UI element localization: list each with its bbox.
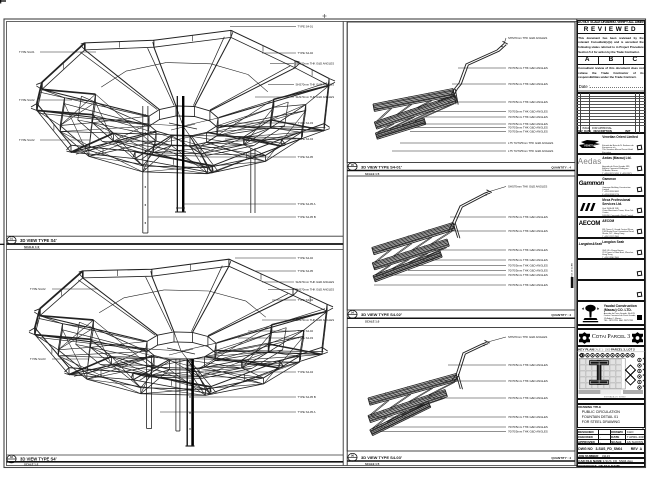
svg-text:TYPE S4-02: TYPE S4-02 xyxy=(30,287,46,291)
svg-text:TYPE S4-03: TYPE S4-03 xyxy=(30,357,46,361)
svg-text:TYPE S4-02: TYPE S4-02 xyxy=(298,298,314,302)
svg-text:SCALE 1:5: SCALE 1:5 xyxy=(365,172,380,176)
svg-text:SHS70mm THK G&D ANGLES: SHS70mm THK G&D ANGLES xyxy=(508,185,547,189)
svg-text:SCALE 1:5: SCALE 1:5 xyxy=(365,462,380,466)
svg-text:70/70/5mm THK G&D ANGLES: 70/70/5mm THK G&D ANGLES xyxy=(508,115,548,119)
svg-text:SHS70mm THK G&D ANGLES: SHS70mm THK G&D ANGLES xyxy=(508,36,547,40)
svg-text:TYPE S4-02: TYPE S4-02 xyxy=(19,98,35,102)
svg-text:01: 01 xyxy=(10,237,13,241)
svg-text:SHS70mm THK G&D ANGLES: SHS70mm THK G&D ANGLES xyxy=(296,318,335,322)
svg-text:70/70/5mm THK G&D ANGLES: 70/70/5mm THK G&D ANGLES xyxy=(508,283,548,287)
svg-text:SHS70mm THK G&D ANGLES: SHS70mm THK G&D ANGLES xyxy=(296,280,335,284)
svg-text:70/70/5mm THK G&D ANGLES: 70/70/5mm THK G&D ANGLES xyxy=(508,248,548,252)
svg-text:SHS70mm THK G&D ANGLES: SHS70mm THK G&D ANGLES xyxy=(296,83,335,87)
svg-text:L75 70/70/5mm THK G&D ANGLES: L75 70/70/5mm THK G&D ANGLES xyxy=(508,141,553,145)
svg-text:70/70/5mm THK G&D ANGLES: 70/70/5mm THK G&D ANGLES xyxy=(508,110,548,114)
svg-text:70/70/5mm THK G&D ANGLES: 70/70/5mm THK G&D ANGLES xyxy=(508,273,548,277)
svg-text:04: 04 xyxy=(351,311,354,315)
svg-text:02: 02 xyxy=(10,455,13,459)
svg-text:TYPE S4-03: TYPE S4-03 xyxy=(298,336,314,340)
svg-text:TYPE S4-05: TYPE S4-05 xyxy=(298,155,314,159)
svg-text:SCALE 1 : 1000: SCALE 1 : 1000 xyxy=(592,348,610,351)
svg-text:TYPE S4-04: TYPE S4-04 xyxy=(298,370,314,374)
svg-text:3D VIEW TYPE S4′: 3D VIEW TYPE S4′ xyxy=(20,238,57,243)
svg-text:70/70/5mm THK G&D ANGLES: 70/70/5mm THK G&D ANGLES xyxy=(508,269,548,273)
svg-text:70/70/5mm THK G&D ANGLES: 70/70/5mm THK G&D ANGLES xyxy=(508,229,548,233)
svg-text:TYPE S4-02: TYPE S4-02 xyxy=(298,51,314,55)
svg-text:70/70/5mm THK G&D ANGLES: 70/70/5mm THK G&D ANGLES xyxy=(508,430,548,434)
svg-text:SHS70mm THK G&D ANGLES: SHS70mm THK G&D ANGLES xyxy=(508,335,547,339)
svg-text:SCALE 1:5: SCALE 1:5 xyxy=(365,320,380,324)
svg-text:VENETIAN: VENETIAN xyxy=(584,144,597,148)
svg-text:3D VIEW TYPE S4-02′: 3D VIEW TYPE S4-02′ xyxy=(361,312,402,317)
svg-text:QUANTITY : 4: QUANTITY : 4 xyxy=(551,313,571,317)
svg-text:TYPE S4-01: TYPE S4-01 xyxy=(298,25,314,29)
svg-text:70/70/5mm THK G&D ANGLES: 70/70/5mm THK G&D ANGLES xyxy=(508,379,548,383)
svg-text:TYPE S4-02: TYPE S4-02 xyxy=(298,256,314,260)
svg-text:SHS70mm THK G&D ANGLES: SHS70mm THK G&D ANGLES xyxy=(296,95,335,99)
svg-text:TYPE S4-05 A: TYPE S4-05 A xyxy=(298,410,316,414)
svg-text:70/70/5mm THK G&D ANGLES: 70/70/5mm THK G&D ANGLES xyxy=(508,130,548,134)
svg-text:SHS70mm THK G&D ANGLES: SHS70mm THK G&D ANGLES xyxy=(296,288,335,292)
svg-text:70/70/5mm THK G&D ANGLES: 70/70/5mm THK G&D ANGLES xyxy=(508,66,548,70)
svg-text:L75 70/70/5mm THK G&D ANGLES: L75 70/70/5mm THK G&D ANGLES xyxy=(508,149,553,153)
svg-text:70/70/5mm THK G&D ANGLES: 70/70/5mm THK G&D ANGLES xyxy=(508,215,548,219)
svg-text:TYPE S4-04: TYPE S4-04 xyxy=(298,137,314,141)
svg-text:3D VIEW TYPE S4-03′: 3D VIEW TYPE S4-03′ xyxy=(361,455,402,460)
svg-text:70/70/5mm THK G&D ANGLES: 70/70/5mm THK G&D ANGLES xyxy=(508,363,548,367)
svg-text:PARCEL 3, LOT 2: PARCEL 3, LOT 2 xyxy=(611,347,635,351)
svg-text:TYPE S4-02: TYPE S4-02 xyxy=(298,329,314,333)
svg-text:70/70/5mm THK G&D ANGLES: 70/70/5mm THK G&D ANGLES xyxy=(508,396,548,400)
svg-text:70/70/5mm THK G&D ANGLES: 70/70/5mm THK G&D ANGLES xyxy=(508,100,548,104)
svg-text:QUANTITY : 4: QUANTITY : 4 xyxy=(551,456,571,460)
svg-text:05: 05 xyxy=(351,163,354,167)
svg-text:TYPE S4-05 B: TYPE S4-05 B xyxy=(298,215,316,219)
svg-text:3D VIEW TYPE S4′: 3D VIEW TYPE S4′ xyxy=(20,457,57,462)
svg-text:QUANTITY : 4: QUANTITY : 4 xyxy=(551,165,571,169)
svg-text:70/70/5mm THK G&D ANGLES: 70/70/5mm THK G&D ANGLES xyxy=(508,258,548,262)
svg-text:70/70/5mm THK G&D ANGLES: 70/70/5mm THK G&D ANGLES xyxy=(508,82,548,86)
svg-text:70/70/5mm THK G&D ANGLES: 70/70/5mm THK G&D ANGLES xyxy=(508,264,548,268)
svg-text:TYPE S4-05: TYPE S4-05 xyxy=(298,269,314,273)
svg-text:06: 06 xyxy=(351,454,354,458)
svg-text:70/70/5mm THK G&D ANGLES: 70/70/5mm THK G&D ANGLES xyxy=(508,425,548,429)
svg-text:TYPE S4-05 B: TYPE S4-05 B xyxy=(298,395,316,399)
svg-text:SCALE 1:2: SCALE 1:2 xyxy=(24,462,39,466)
svg-text:70/70/5mm THK G&D ANGLES: 70/70/5mm THK G&D ANGLES xyxy=(508,415,548,419)
svg-text:TYPE S4-02: TYPE S4-02 xyxy=(19,138,35,142)
svg-text:TYPE S4-05 A: TYPE S4-05 A xyxy=(298,202,316,206)
svg-text:3D VIEW TYPE S4-01′: 3D VIEW TYPE S4-01′ xyxy=(361,164,402,169)
svg-text:SCALE 1:2: SCALE 1:2 xyxy=(24,245,40,249)
svg-text:TYPE S4-01: TYPE S4-01 xyxy=(19,50,35,54)
svg-text:SHS70mm THK G&D ANGLES: SHS70mm THK G&D ANGLES xyxy=(296,62,335,66)
svg-text:TYPE S4-03: TYPE S4-03 xyxy=(298,121,314,125)
